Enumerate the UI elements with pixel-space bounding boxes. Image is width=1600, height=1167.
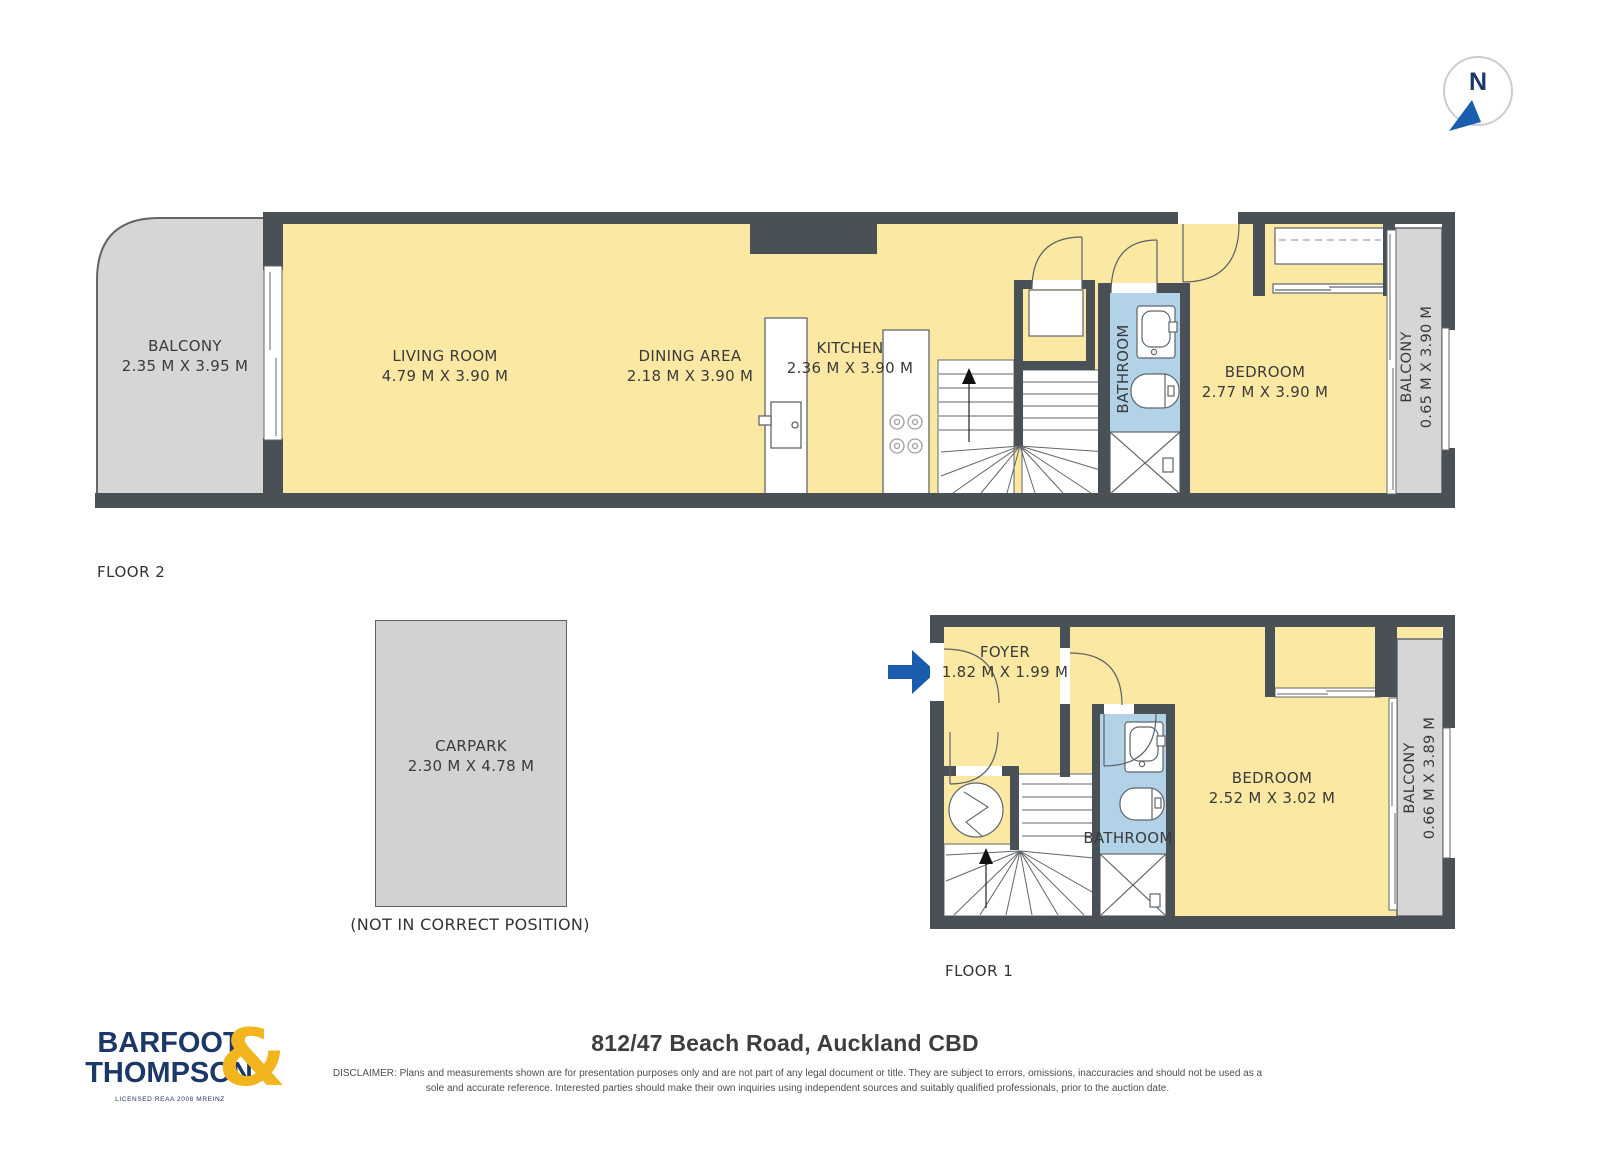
logo-ampersand: & [218,1014,286,1104]
floorplan-page: N [0,0,1600,1167]
floor1-wardrobe-sliding-door [1275,688,1380,697]
carpark-note: (NOT IN CORRECT POSITION) [330,915,610,934]
carpark-label: CARPARK 2.30 M X 4.78 M [376,736,566,776]
floor2-plan: BALCONY 2.35 M X 3.95 M LIVING ROOM 4.79… [95,210,1457,516]
address-title: 812/47 Beach Road, Auckland CBD [285,1030,1285,1057]
floor2-bedroom-label: BEDROOM 2.77 M X 3.90 M [1180,362,1350,402]
floor2-balcony-left-label: BALCONY 2.35 M X 3.95 M [105,336,265,376]
hot-water-cylinder-icon [949,783,1003,837]
floor1-bedroom-label: BEDROOM 2.52 M X 3.02 M [1182,768,1362,808]
logo-license-text: LICENSED REAA 2008 MREINZ [85,1096,255,1103]
disclaimer-text: DISCLAIMER: Plans and measurements shown… [330,1066,1265,1096]
floor1-balcony-label: BALCONY 0.66 M X 3.89 M [1400,713,1440,843]
floor2-caption: FLOOR 2 [97,563,165,581]
carpark-box: CARPARK 2.30 M X 4.78 M [375,620,567,907]
north-arrow-icon [1443,56,1513,136]
floor2-sink [1137,306,1177,358]
floor2-living-room-label: LIVING ROOM 4.79 M X 3.90 M [365,346,525,386]
floor1-toilet [1120,788,1164,820]
barfoot-thompson-logo: BARFOOT THOMPSON & LICENSED REAA 2008 MR… [85,1028,275,1120]
floor2-toilet [1131,374,1179,408]
floor2-kitchen-label: KITCHEN 2.36 M X 3.90 M [775,338,925,378]
floor2-dining-area-label: DINING AREA 2.18 M X 3.90 M [595,346,785,386]
floor2-shower [1110,432,1180,494]
floor1-cylinder-closet [944,776,1010,844]
floor1-sink [1125,722,1165,772]
floor2-closet-shelf [1029,290,1083,336]
floor2-bathroom-label: BATHROOM [1113,319,1133,419]
north-indicator: N [1443,56,1513,136]
floor1-shower [1100,854,1166,916]
floor1-caption: FLOOR 1 [945,962,1013,980]
floor1-plan: FOYER 1.82 M X 1.99 M BATHROOM BEDROOM 2… [870,608,1470,943]
entry-arrow-icon [888,650,936,694]
floor2-balcony-right-label: BALCONY 0.65 M X 3.90 M [1397,302,1437,432]
floor1-foyer-label: FOYER 1.82 M X 1.99 M [930,642,1080,682]
floor1-bathroom-label: BATHROOM [1065,828,1191,848]
